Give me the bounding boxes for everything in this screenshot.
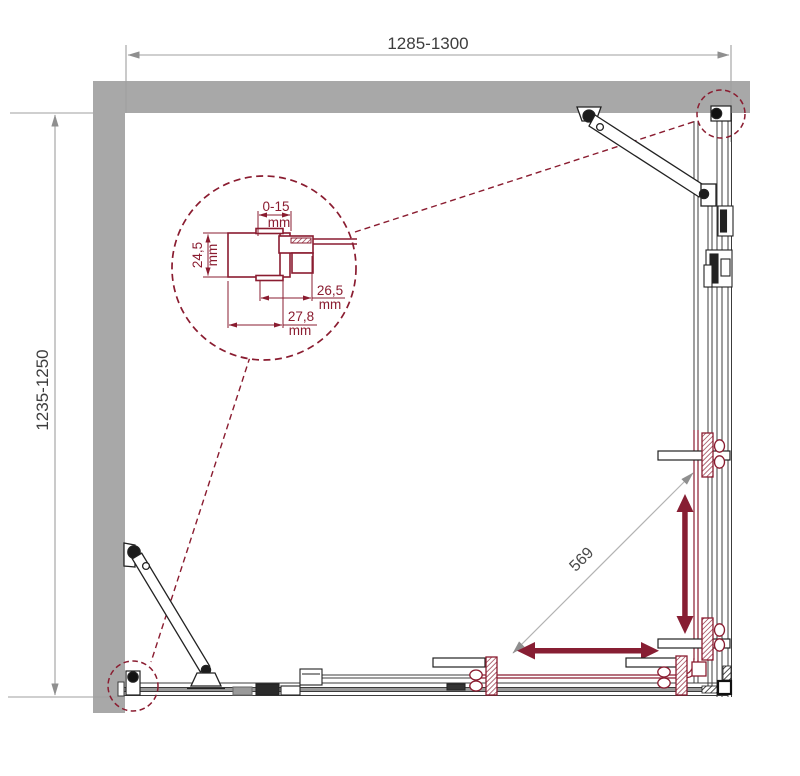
diagonal-dimension-label: 569 (566, 544, 597, 575)
bottom-panel-frame (118, 430, 728, 696)
diagonal-dimension: 569 (513, 473, 693, 653)
shower-enclosure-drawing: 1285-1300 1235-1250 (0, 0, 800, 776)
pivot-knob (699, 189, 708, 198)
leader-line-bottom-left (151, 357, 250, 662)
top-wall (93, 81, 750, 113)
slide-arrow-vertical (677, 494, 694, 634)
depth-dimension-label: 1235-1250 (33, 349, 52, 430)
inner-width-unit: mm (319, 297, 342, 312)
walls (93, 81, 750, 713)
profile-depth-unit: mm (205, 244, 220, 267)
floor-foot (191, 673, 221, 686)
bar-hole (143, 563, 150, 570)
brace-bar (589, 115, 705, 197)
outer-width-label: 27,8 (288, 309, 314, 324)
brace-bar (132, 553, 209, 672)
profile-depth-label: 24,5 (190, 242, 205, 268)
slide-arrow-horizontal (517, 642, 659, 660)
inner-width-label: 26,5 (317, 283, 343, 298)
technical-drawing-page: 1285-1300 1235-1250 (0, 0, 800, 776)
leader-line-top-right (355, 121, 696, 232)
bar-hole (597, 124, 604, 131)
adjustment-label: 0-15 (262, 199, 289, 214)
outer-width-unit: mm (289, 323, 312, 338)
wall-brace-bottom (124, 543, 225, 689)
profile-detail-view: 0-15 mm 24,5 mm 26,5 mm 27,8 mm (172, 176, 357, 360)
width-dimension-label: 1285-1300 (387, 34, 468, 53)
wall-brace-top (577, 107, 716, 206)
left-wall (93, 81, 125, 713)
diagonal-dimension-line (513, 473, 693, 653)
adjustment-unit: mm (268, 215, 291, 230)
detail-markers (108, 90, 745, 711)
